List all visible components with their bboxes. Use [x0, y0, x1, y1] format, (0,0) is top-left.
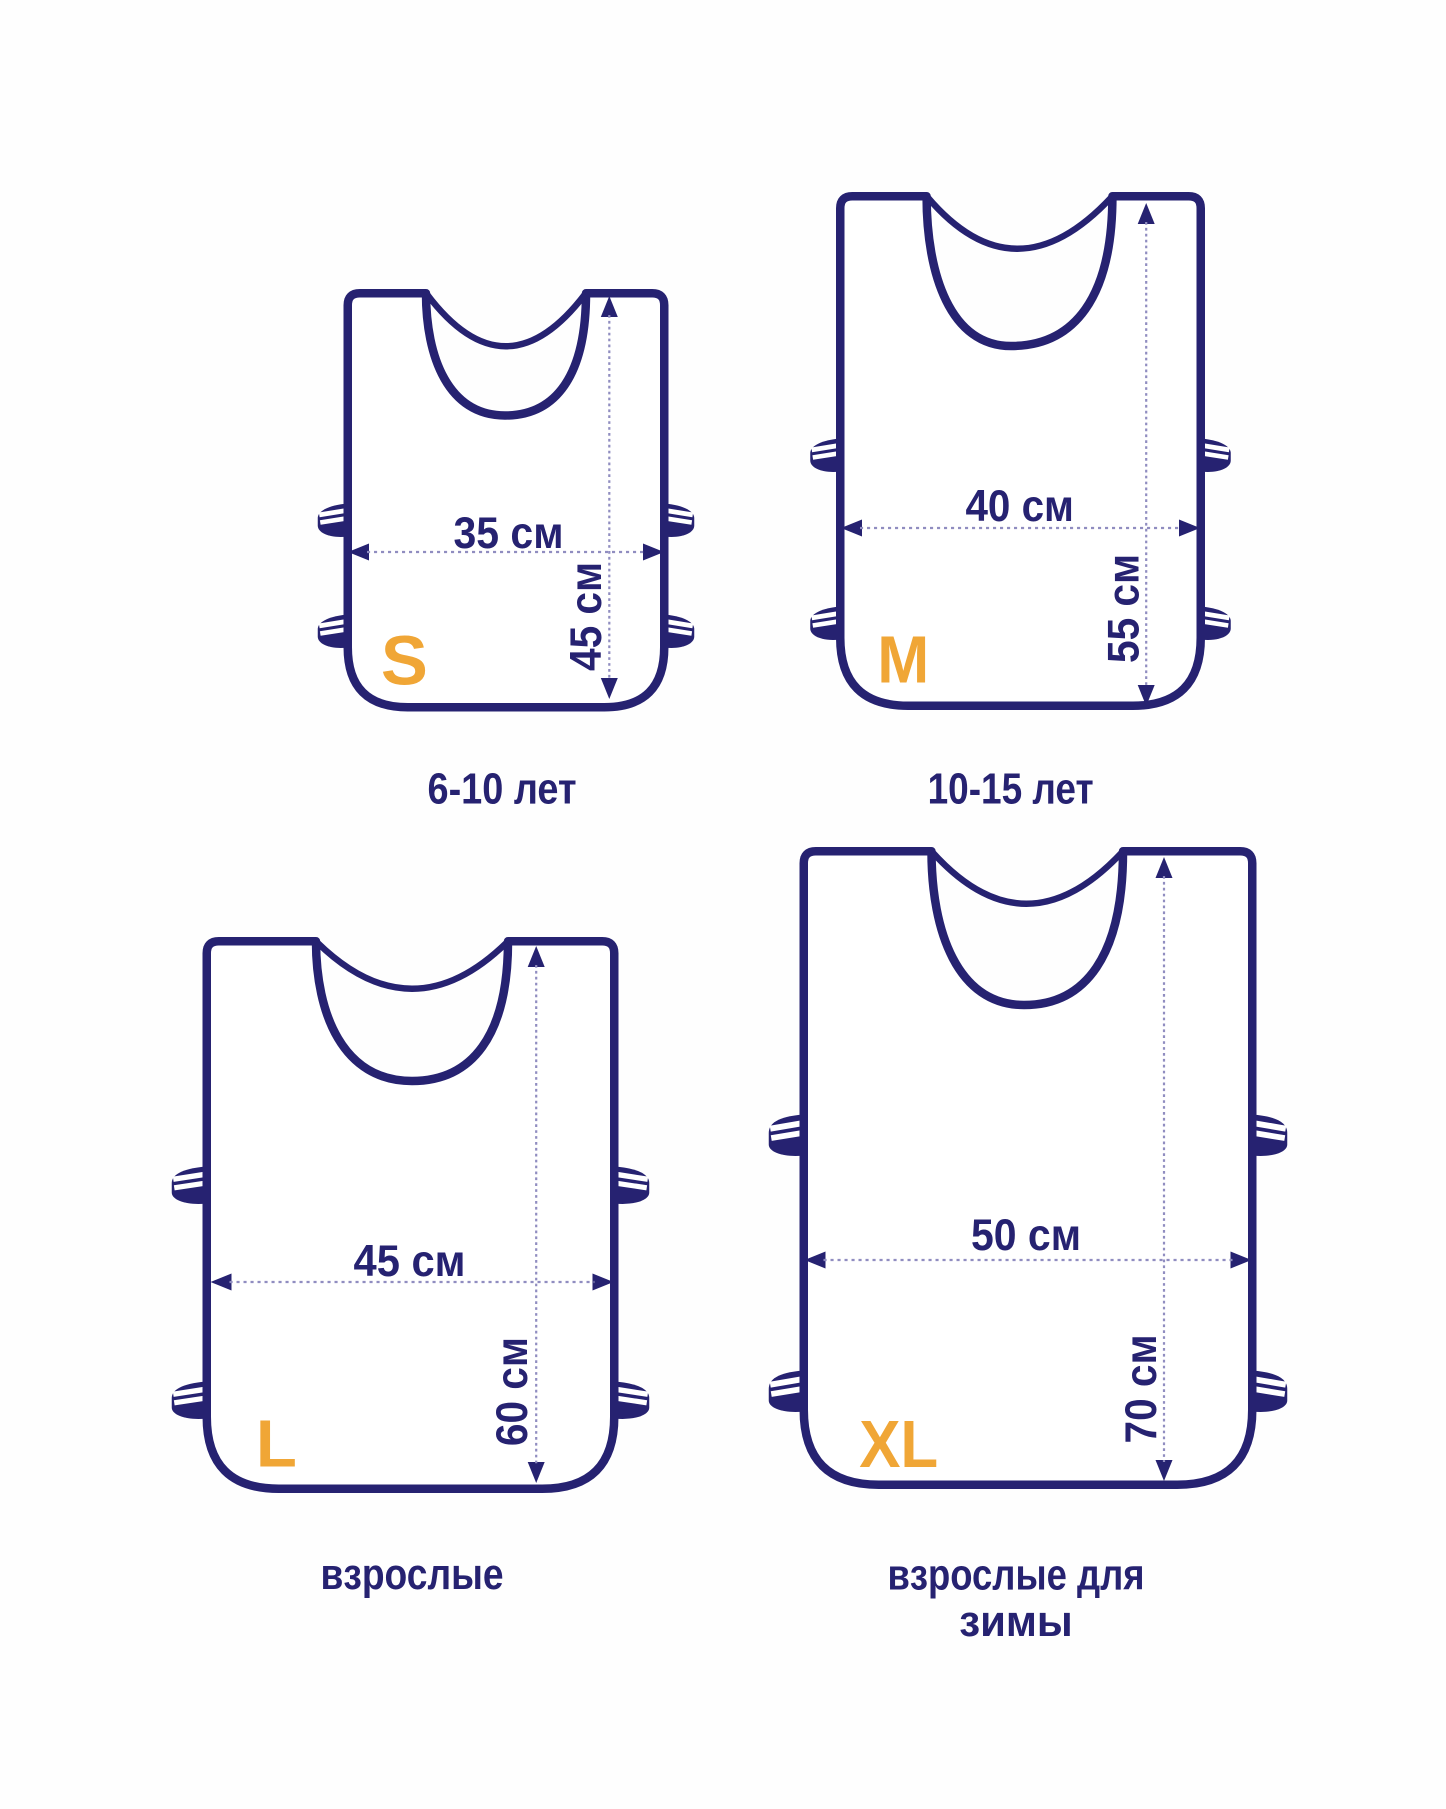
svg-text:взрослые для: взрослые для [888, 1550, 1145, 1599]
svg-text:35 см: 35 см [454, 509, 564, 558]
svg-text:45 см: 45 см [354, 1237, 466, 1286]
svg-text:взрослые: взрослые [321, 1550, 504, 1599]
svg-text:45 см: 45 см [562, 562, 611, 671]
svg-text:70 см: 70 см [1117, 1335, 1166, 1444]
svg-text:6-10 лет: 6-10 лет [428, 765, 577, 814]
svg-text:10-15 лет: 10-15 лет [928, 765, 1094, 814]
svg-text:50 см: 50 см [971, 1211, 1081, 1260]
svg-text:XL: XL [859, 1407, 938, 1482]
svg-text:M: M [877, 623, 929, 698]
svg-text:60 см: 60 см [488, 1337, 537, 1446]
svg-text:55 см: 55 см [1100, 554, 1149, 663]
svg-text:L: L [256, 1407, 297, 1482]
svg-text:40 см: 40 см [965, 482, 1074, 531]
svg-text:S: S [381, 622, 428, 700]
svg-text:зимы: зимы [959, 1597, 1073, 1646]
